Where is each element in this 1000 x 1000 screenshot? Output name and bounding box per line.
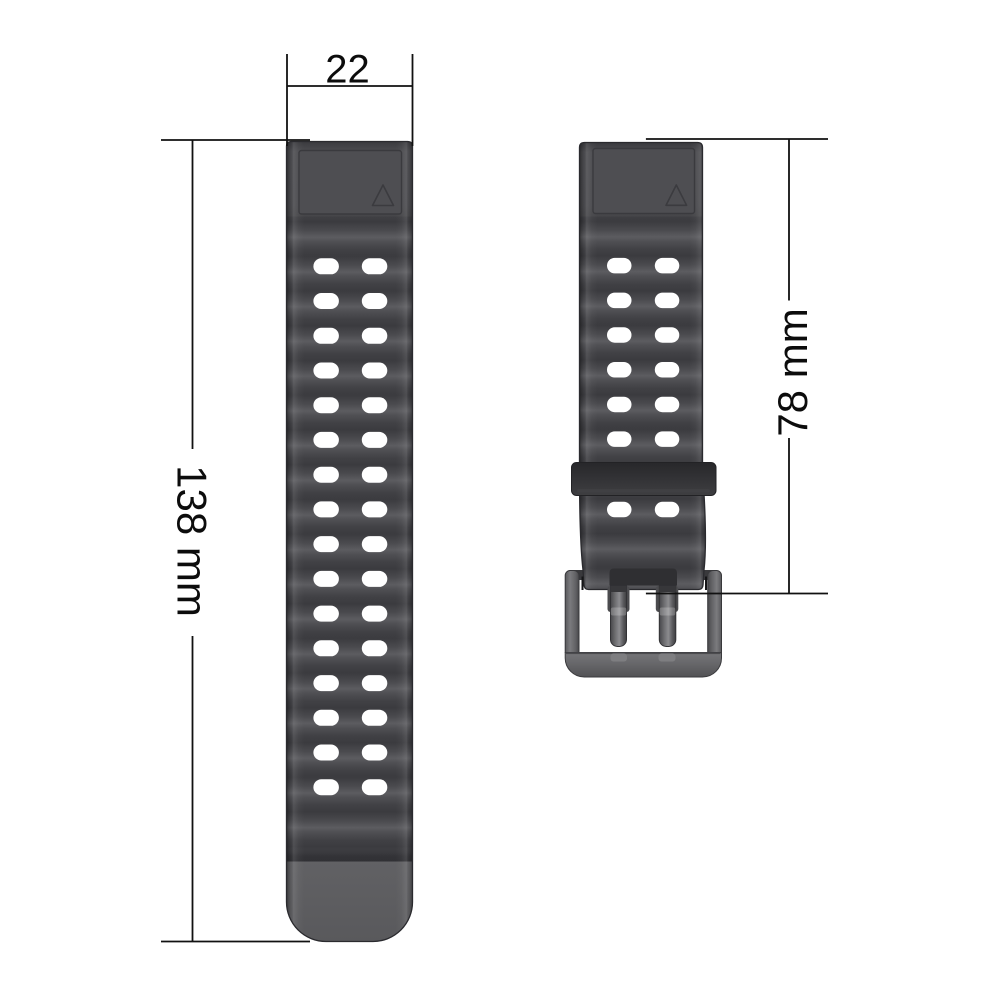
svg-text:78 mm: 78 mm xyxy=(769,308,816,436)
svg-text:22: 22 xyxy=(325,48,370,92)
svg-text:138 mm: 138 mm xyxy=(169,465,216,617)
